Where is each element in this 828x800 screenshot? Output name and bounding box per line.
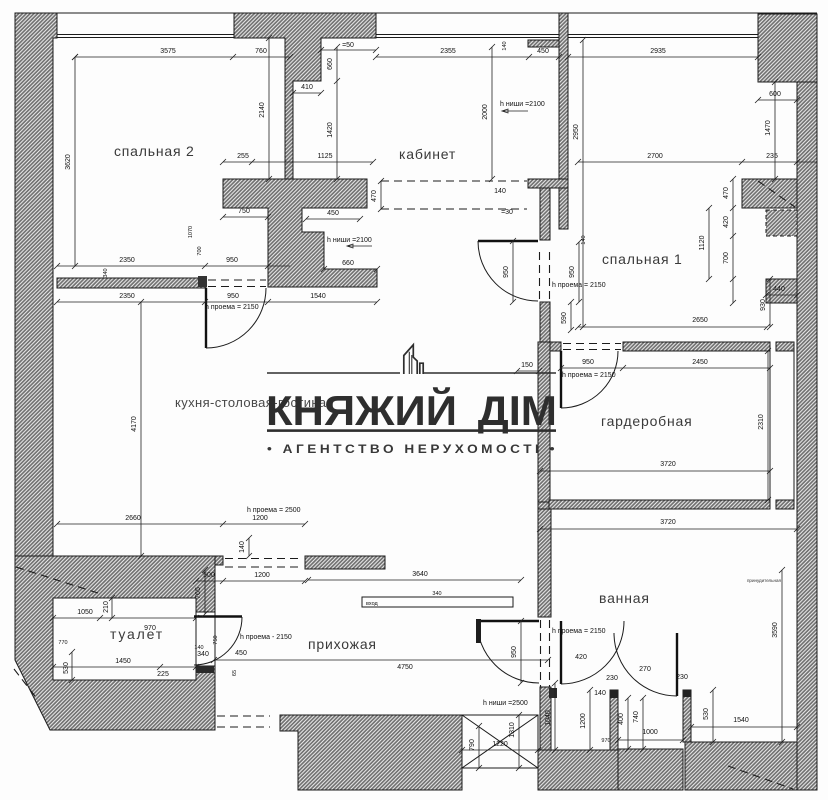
svg-text:2450: 2450: [692, 359, 708, 366]
svg-text:=50: =50: [342, 42, 354, 49]
svg-text:2355: 2355: [440, 48, 456, 55]
svg-text:235: 235: [766, 153, 778, 160]
svg-text:4170: 4170: [131, 416, 138, 432]
svg-text:400: 400: [618, 713, 625, 725]
svg-text:вход: вход: [366, 601, 379, 607]
svg-text:140: 140: [494, 188, 506, 195]
svg-text:140: 140: [581, 235, 587, 244]
svg-text:1000: 1000: [642, 729, 658, 736]
svg-text:2350: 2350: [119, 293, 135, 300]
svg-text:3575: 3575: [160, 48, 176, 55]
svg-text:2350: 2350: [119, 257, 135, 264]
svg-text:700: 700: [723, 252, 730, 264]
svg-text:340: 340: [432, 591, 441, 597]
svg-text:950: 950: [227, 293, 239, 300]
svg-text:3720: 3720: [660, 519, 676, 526]
svg-text:h проема = 2150: h проема = 2150: [562, 372, 616, 379]
svg-text:1420: 1420: [327, 122, 334, 138]
svg-text:3620: 3620: [65, 154, 72, 170]
svg-text:750: 750: [213, 635, 219, 644]
svg-text:2650: 2650: [692, 317, 708, 324]
svg-text:970: 970: [601, 738, 610, 744]
svg-text:930: 930: [760, 299, 767, 311]
svg-text:950: 950: [226, 257, 238, 264]
svg-text:470: 470: [371, 190, 378, 202]
svg-text:3590: 3590: [772, 622, 779, 638]
svg-text:3720: 3720: [660, 461, 676, 468]
svg-text:1050: 1050: [77, 609, 93, 616]
svg-text:1125: 1125: [317, 153, 332, 160]
svg-text:h проема = 2500: h проема = 2500: [247, 507, 301, 514]
svg-text:770: 770: [58, 640, 67, 646]
svg-text:1200: 1200: [580, 713, 587, 729]
svg-text:420: 420: [575, 654, 587, 661]
svg-text:1470: 1470: [765, 120, 772, 136]
svg-text:2950: 2950: [573, 124, 580, 140]
svg-text:450: 450: [327, 210, 339, 217]
svg-text:2310: 2310: [758, 414, 765, 430]
svg-text:760: 760: [255, 48, 267, 55]
svg-text:2935: 2935: [650, 48, 666, 55]
svg-text:1450: 1450: [115, 658, 131, 665]
svg-text:590: 590: [561, 312, 568, 324]
svg-text:950: 950: [503, 266, 510, 278]
svg-text:h ниши =2500: h ниши =2500: [483, 700, 528, 707]
svg-text:210: 210: [103, 601, 110, 613]
svg-text:270: 270: [639, 666, 651, 673]
svg-text:h ниши =2100: h ниши =2100: [327, 237, 372, 244]
svg-text:230: 230: [676, 674, 688, 681]
svg-text:790: 790: [469, 739, 476, 751]
svg-text:740: 740: [633, 711, 640, 723]
svg-text:225: 225: [157, 671, 169, 678]
svg-text:440: 440: [773, 286, 785, 293]
svg-text:КНЯЖИЙ ДІМ: КНЯЖИЙ ДІМ: [266, 387, 557, 434]
svg-text:1200: 1200: [254, 572, 270, 579]
svg-text:340: 340: [103, 268, 109, 277]
svg-text:140: 140: [594, 690, 606, 697]
svg-text:950: 950: [582, 359, 594, 366]
svg-text:530: 530: [63, 662, 70, 674]
svg-text:прихожая: прихожая: [308, 636, 377, 652]
svg-text:h ниши =2100: h ниши =2100: [500, 101, 545, 108]
svg-text:150: 150: [521, 362, 533, 369]
svg-text:750: 750: [238, 208, 250, 215]
svg-text:2140: 2140: [259, 102, 266, 118]
svg-text:ванная: ванная: [599, 590, 650, 606]
svg-text:туалет: туалет: [110, 626, 164, 642]
svg-text:1120: 1120: [699, 235, 706, 250]
svg-text:140: 140: [502, 41, 508, 50]
svg-text:530: 530: [703, 708, 710, 720]
svg-text:1040: 1040: [545, 710, 552, 726]
svg-text:420: 420: [723, 216, 730, 228]
svg-text:3640: 3640: [412, 571, 428, 578]
svg-text:230: 230: [606, 675, 618, 682]
svg-text:4750: 4750: [397, 664, 413, 671]
svg-text:765: 765: [195, 587, 202, 599]
svg-text:1200: 1200: [252, 515, 268, 522]
svg-text:470: 470: [723, 187, 730, 199]
svg-text:h проема = 2150: h проема = 2150: [205, 304, 259, 311]
svg-text:• АГЕНТСТВО НЕРУХОМОСТІ •: • АГЕНТСТВО НЕРУХОМОСТІ •: [267, 444, 558, 456]
svg-text:700: 700: [197, 246, 203, 255]
svg-text:340: 340: [197, 651, 209, 658]
svg-text:1310: 1310: [509, 722, 516, 738]
svg-text:65: 65: [232, 670, 238, 676]
svg-text:1540: 1540: [310, 293, 326, 300]
svg-text:=30: =30: [501, 209, 513, 216]
svg-text:гардеробная: гардеробная: [601, 413, 693, 429]
svg-text:450: 450: [235, 650, 247, 657]
svg-text:410: 410: [301, 84, 313, 91]
svg-text:140: 140: [239, 541, 246, 553]
svg-text:h проема - 2150: h проема - 2150: [240, 634, 292, 641]
svg-text:950: 950: [569, 266, 576, 278]
svg-text:660: 660: [327, 58, 334, 70]
svg-text:1070: 1070: [188, 226, 194, 238]
svg-text:h проема = 2150: h проема = 2150: [552, 628, 606, 635]
svg-text:660: 660: [342, 260, 354, 267]
svg-text:2660: 2660: [125, 515, 141, 522]
svg-text:255: 255: [237, 153, 249, 160]
svg-text:спальная 1: спальная 1: [602, 251, 683, 267]
svg-text:2000: 2000: [482, 104, 489, 120]
svg-text:принудительная: принудительная: [747, 578, 782, 583]
svg-text:2700: 2700: [647, 153, 663, 160]
svg-text:1540: 1540: [733, 717, 749, 724]
svg-text:кабинет: кабинет: [399, 146, 456, 162]
svg-text:1220: 1220: [492, 741, 508, 748]
svg-text:450: 450: [537, 48, 549, 55]
svg-text:спальная 2: спальная 2: [114, 143, 195, 159]
svg-text:950: 950: [511, 646, 518, 658]
